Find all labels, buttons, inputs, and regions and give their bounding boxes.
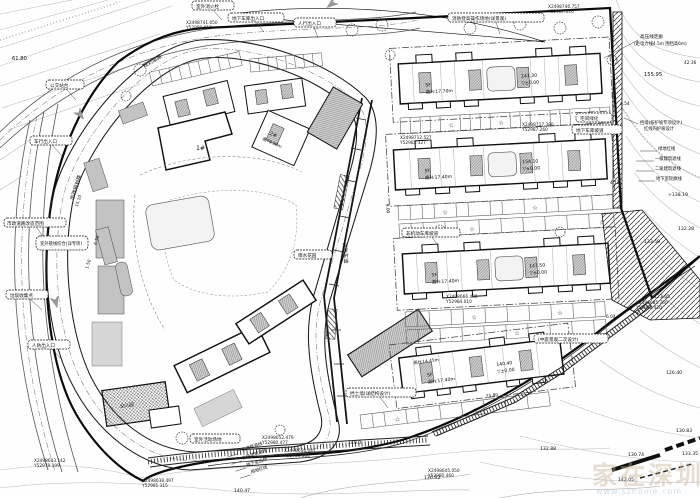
svg-text:Y52985.420: Y52985.420: [635, 305, 662, 311]
tree-star-icon: ☆: [469, 226, 475, 233]
building-floors: 5F: [427, 372, 434, 379]
spot-elevation: 61.80: [12, 56, 27, 62]
barrier-strip: [613, 12, 622, 208]
spot-elevation: 42.36: [684, 60, 697, 66]
spot-elevation: 133.59: [644, 239, 660, 245]
building-floors: 5F: [425, 82, 431, 88]
tree-star-icon: ☆: [442, 209, 448, 216]
svg-text:人行出入口: 人行出入口: [298, 20, 321, 27]
spot-elevation: 136.93: [424, 475, 440, 481]
svg-text:地下车库出入口: 地下车库出入口: [232, 15, 265, 22]
svg-text:雨水花园: 雨水花园: [298, 252, 317, 259]
svg-text:公交站台: 公交站台: [50, 82, 69, 89]
tree-star-icon: ☆: [498, 120, 504, 127]
svg-text:人防出入口: 人防出入口: [32, 342, 55, 349]
cluster-building: [244, 78, 305, 114]
svg-text:Y52980.304: Y52980.304: [283, 453, 310, 459]
parking-row: ☆ ☆: [360, 392, 550, 429]
tag: (中庭景观二次设计): [534, 334, 608, 343]
svg-text:二级建筑退线: 二级建筑退线: [655, 165, 681, 172]
arrow-icon: [50, 296, 61, 309]
tag: 垃圾收集点: [6, 290, 48, 310]
svg-text:非机动车库坡道: 非机动车库坡道: [406, 230, 439, 237]
coord-label: X2498638.497Y52981.315: [141, 478, 174, 489]
building-floors: 5F: [424, 168, 430, 174]
tower-2: [252, 110, 310, 165]
coord-label: X2498746.757Y52987.110: [547, 4, 580, 15]
spot-elevation: 132.28: [678, 226, 694, 232]
tag: 地下车库坡道: [572, 125, 622, 134]
coord-label: X2498666.480Y52984.010: [445, 294, 478, 305]
svg-text:Y52980.010: Y52980.010: [185, 25, 212, 31]
svg-text:红线内护坡设计: 红线内护坡设计: [644, 125, 675, 132]
contour-lines-topleft: [0, 0, 172, 190]
building-base-level: ▽±0.00: [529, 269, 547, 276]
spot-elevation: 130.83: [676, 428, 692, 434]
watermark: 家在深圳 www.szhome.com: [592, 461, 700, 496]
svg-text:宅间绿化: 宅间绿化: [580, 115, 599, 122]
watermark-en: www.szhome.com: [596, 487, 682, 496]
building-base-level: ▽±0.00: [522, 165, 540, 172]
svg-text:Y52983.327: Y52983.327: [399, 140, 426, 146]
tag: 挡土墙(详结构设计): [346, 388, 416, 408]
building-floors: 5F: [431, 272, 437, 278]
svg-text:绿地红线: 绿地红线: [658, 145, 676, 152]
parking-strip: [149, 52, 242, 86]
playground: [144, 195, 215, 251]
tree-star-icon: ☆: [394, 416, 401, 424]
building-base-level: ▽±0.00: [521, 80, 539, 87]
building-elevation: 154.10: [522, 158, 538, 165]
arrow-icon: [324, 0, 338, 11]
svg-text:车行出入口: 车行出入口: [34, 138, 57, 145]
upper-left-cluster: [84, 52, 363, 366]
svg-text:Y52981.315: Y52981.315: [141, 483, 168, 489]
road-name-diagonal: 消防车道: [341, 242, 350, 263]
svg-text:Y52980.477: Y52980.477: [261, 440, 288, 446]
spot-elevation: 132.88: [540, 446, 556, 452]
spot-elevation: 130.74: [628, 452, 644, 458]
svg-text:1.50: 1.50: [84, 259, 93, 270]
svg-text:室外消火栓: 室外消火栓: [196, 3, 219, 10]
svg-text:Y52987.110: Y52987.110: [547, 9, 574, 15]
tag: 室外活动场地: [190, 434, 240, 443]
svg-text:6.04: 6.04: [606, 314, 616, 320]
tag: 宅间绿化: [576, 113, 612, 122]
gray-plaza: [92, 322, 122, 366]
svg-text:挡墙(按护坡专项设计): 挡墙(按护坡专项设计): [640, 119, 682, 126]
spot-elevation: 140.47: [234, 488, 250, 494]
tag: 市政道路改造范围: [4, 218, 66, 238]
svg-text:Y52979.109: Y52979.109: [33, 463, 60, 469]
cluster-building: [236, 280, 316, 344]
svg-text:挡土墙(详结构设计): 挡土墙(详结构设计): [350, 390, 391, 397]
svg-text:9.00: 9.00: [384, 203, 391, 214]
svg-text:4.54: 4.54: [620, 101, 630, 107]
building-1-group: 5F 高H:17.70m 141.30 ▽±0.00: [389, 37, 613, 122]
tree-star-icon: ☆: [557, 310, 563, 317]
svg-text:(距电力线4.5m 围挡高6m): (距电力线4.5m 围挡高6m): [634, 40, 687, 47]
watermark-cn: 家在深圳: [592, 461, 700, 490]
spot-elevation: 126.40: [666, 370, 682, 376]
tag: 消防登高操作场地(详景观): [448, 13, 544, 34]
spot-elevation: 155.95: [644, 72, 662, 78]
svg-text:室外管线综合(详专项): 室外管线综合(详专项): [40, 240, 82, 247]
spot-elevation: 140.0: [348, 440, 361, 446]
svg-text:高压线走廊: 高压线走廊: [640, 33, 663, 40]
tag: 雨水花园: [294, 250, 332, 259]
coord-label: X2498717.390Y52987.260: [521, 122, 554, 133]
tree-star-icon: ☆: [514, 330, 520, 337]
spot-elevation: 133.35: [682, 451, 698, 457]
svg-text:垃圾收集点: 垃圾收集点: [10, 292, 33, 299]
building-elevation: 141.30: [521, 73, 537, 80]
svg-text:(中庭景观二次设计): (中庭景观二次设计): [538, 336, 579, 343]
svg-text:消防登高操作场地(详景观): 消防登高操作场地(详景观): [452, 15, 506, 22]
site-plan-svg: 5F 高H:17.70m 141.30 ▽±0.00 ☆ ☆ ☆ 5F 高H:1…: [0, 0, 700, 498]
tree-star-icon: ☆: [532, 205, 538, 212]
note-retaining-wall: 挡墙(按护坡专项设计) 红线内护坡设计: [624, 118, 682, 132]
tree-star-icon: ☆: [471, 314, 477, 321]
svg-text:4.12: 4.12: [610, 180, 620, 186]
bus-bay: [84, 158, 108, 191]
site-plan-canvas: 5F 高H:17.70m 141.30 ▽±0.00 ☆ ☆ ☆ 5F 高H:1…: [0, 0, 700, 498]
building-3-group: 5F 高H:17.40m 147.50 ▽±0.00: [393, 227, 618, 311]
svg-text:地下车库坡道: 地下车库坡道: [576, 127, 604, 134]
svg-text:室外活动场地: 室外活动场地: [194, 436, 222, 443]
svg-text:市政道路改造范围: 市政道路改造范围: [7, 220, 44, 227]
svg-text:Y52987.260: Y52987.260: [521, 127, 548, 133]
tree-star-icon: ☆: [448, 122, 454, 129]
building-elevation: 147.50: [529, 263, 545, 270]
tag: 非机动车库坡道: [402, 228, 460, 246]
tag: 室外管线综合(详专项): [36, 236, 88, 250]
spot-elevation: +138.19: [668, 192, 688, 198]
svg-text:Y52984.010: Y52984.010: [445, 299, 472, 305]
legend-right: 绿地红线 一级建筑退线 二级建筑退线 地下室轮廓线: [636, 145, 682, 182]
svg-text:一级建筑退线: 一级建筑退线: [655, 155, 681, 162]
coord-label: X2498741.050Y52980.010: [185, 20, 218, 31]
cluster1-name: 1#: [196, 145, 205, 152]
arrow-icon: [74, 108, 87, 122]
spot-elevation: 123.65: [654, 294, 670, 300]
svg-text:地下室轮廓线: 地下室轮廓线: [656, 175, 682, 182]
